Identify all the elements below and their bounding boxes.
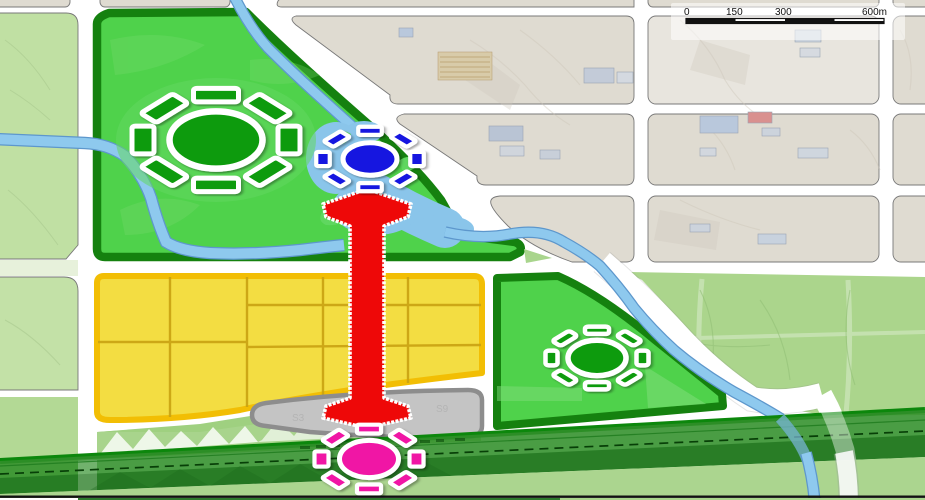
svg-text:600m: 600m	[862, 7, 887, 18]
svg-text:S3: S3	[292, 413, 305, 424]
svg-text:300: 300	[775, 7, 792, 18]
svg-text:0: 0	[684, 7, 690, 18]
svg-text:S9: S9	[436, 404, 449, 415]
svg-text:150: 150	[726, 7, 743, 18]
